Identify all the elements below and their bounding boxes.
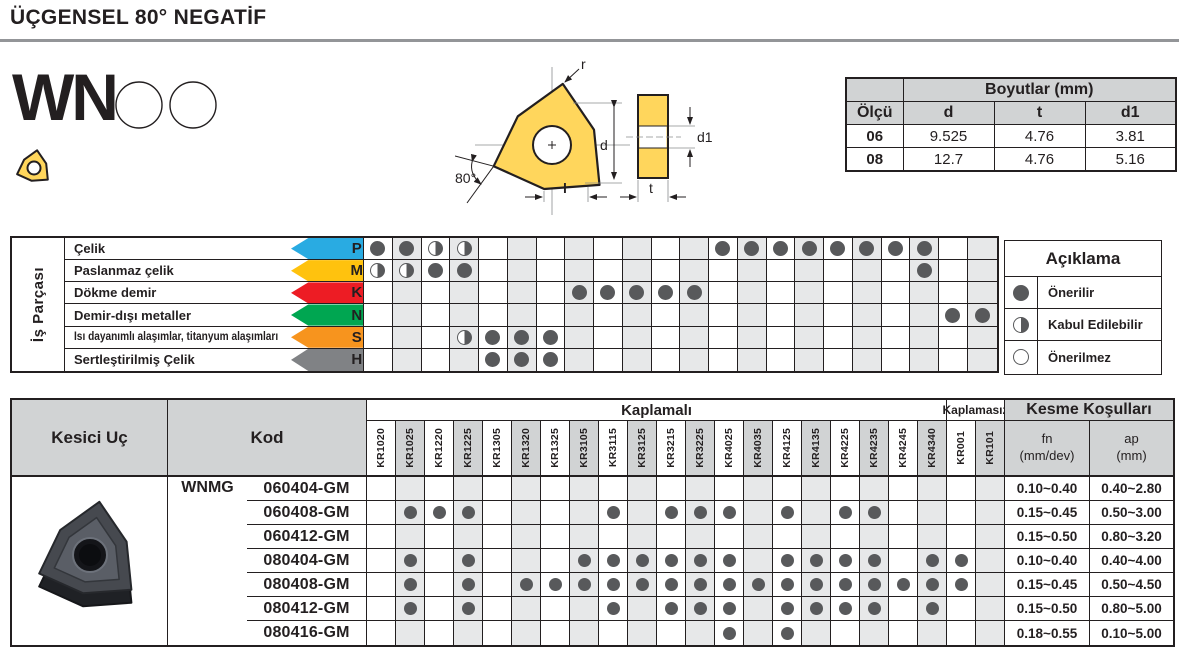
grade-cell-060412-GM-KR4245 <box>889 525 918 549</box>
grade-cell-080416-GM-KR4025 <box>715 621 744 645</box>
grade-header-KR4125: KR4125 <box>773 421 802 477</box>
grade-cell-080408-GM-KR4340 <box>918 573 947 597</box>
grade-cell-060408-GM-KR3125 <box>628 501 657 525</box>
rating-full-icon <box>629 285 644 300</box>
grade-cell-080416-GM-KR3125 <box>628 621 657 645</box>
page-title: ÜÇGENSEL 80° NEGATİF <box>10 6 266 30</box>
rating-full-icon <box>636 578 649 591</box>
cutting-conditions-header: Kesme Koşulları <box>1005 400 1173 421</box>
grade-cell-060412-GM-KR4225 <box>831 525 860 549</box>
rating-cell-K-KR1020 <box>364 282 393 304</box>
grade-cell-060412-GM-KR4340 <box>918 525 947 549</box>
grade-cell-080412-GM-KR3225 <box>686 597 715 621</box>
grade-cell-080416-GM-KR1020 <box>367 621 396 645</box>
legend-label-acceptable: Kabul Edilebilir <box>1038 309 1161 341</box>
rating-cell-N-KR101 <box>968 304 997 326</box>
grade-cell-060408-GM-KR3115 <box>599 501 628 525</box>
grade-cell-080416-GM-KR4245 <box>889 621 918 645</box>
title-divider <box>0 39 1179 42</box>
rating-full-icon <box>897 578 910 591</box>
grade-cell-080404-GM-KR1020 <box>367 549 396 573</box>
grade-cell-060412-GM-KR001 <box>947 525 976 549</box>
grade-cell-080408-GM-KR4245 <box>889 573 918 597</box>
grade-cell-080412-GM-KR001 <box>947 597 976 621</box>
grade-label: KR4025 <box>723 428 735 468</box>
label-r: r <box>581 56 586 72</box>
grade-cell-080404-GM-KR1320 <box>512 549 541 573</box>
rating-cell-N-KR4235 <box>853 304 882 326</box>
grade-cell-060404-GM-KR001 <box>947 477 976 501</box>
grade-header-KR001: KR001 <box>947 421 976 477</box>
rating-cell-K-KR1325 <box>537 282 566 304</box>
rating-cell-M-KR4125 <box>767 260 796 282</box>
iso-class-arrow-H: H <box>291 349 363 371</box>
grade-cell-060404-GM-KR4125 <box>773 477 802 501</box>
grade-cell-080416-GM-KR1225 <box>454 621 483 645</box>
rating-full-icon <box>810 554 823 567</box>
rating-cell-H-KR4125 <box>767 349 796 371</box>
rating-cell-K-KR3215 <box>652 282 681 304</box>
rating-cell-H-KR4225 <box>824 349 853 371</box>
fn-value-060404-GM: 0.10~0.40 <box>1005 477 1090 501</box>
iso-class-arrow-S: S <box>291 327 363 348</box>
product-code-080404-GM: 080404-GM <box>247 549 367 573</box>
material-name: Dökme demir <box>74 285 156 300</box>
rating-cell-N-KR4025 <box>709 304 738 326</box>
rating-cell-K-KR1305 <box>479 282 508 304</box>
rating-cell-H-KR4235 <box>853 349 882 371</box>
rating-full-icon <box>658 285 673 300</box>
rating-cell-M-KR4225 <box>824 260 853 282</box>
rating-full-icon <box>781 578 794 591</box>
rating-full-icon <box>687 285 702 300</box>
rating-cell-P-KR4225 <box>824 238 853 260</box>
rating-cell-M-KR1025 <box>393 260 422 282</box>
grade-cell-080404-GM-KR001 <box>947 549 976 573</box>
rating-cell-K-KR001 <box>939 282 968 304</box>
grade-cell-060412-GM-KR3225 <box>686 525 715 549</box>
label-angle: 80° <box>455 170 476 186</box>
uncoated-group-header: Kaplamasız <box>947 400 1005 421</box>
grade-header-KR1320: KR1320 <box>512 421 541 477</box>
grade-cell-080416-GM-KR1320 <box>512 621 541 645</box>
grade-cell-060408-GM-KR1325 <box>541 501 570 525</box>
grade-cell-080404-GM-KR4035 <box>744 549 773 573</box>
rating-cell-P-KR3125 <box>623 238 652 260</box>
grade-label: KR3115 <box>607 428 619 467</box>
grade-label: KR1020 <box>375 428 387 468</box>
rating-cell-H-KR3105 <box>565 349 594 371</box>
rating-cell-P-KR4340 <box>910 238 939 260</box>
rating-full-icon <box>428 263 443 278</box>
grade-label: KR101 <box>984 431 996 465</box>
rating-full-icon <box>607 554 620 567</box>
legend: Açıklama Önerilir Kabul Edilebilir Öneri… <box>1004 240 1162 375</box>
rating-full-icon <box>868 554 881 567</box>
rating-full-icon <box>514 330 529 345</box>
grade-cell-080412-GM-KR1020 <box>367 597 396 621</box>
grade-cell-080408-GM-KR3215 <box>657 573 686 597</box>
rating-cell-S-KR4340 <box>910 327 939 349</box>
rating-cell-P-KR1020 <box>364 238 393 260</box>
grade-header-KR4225: KR4225 <box>831 421 860 477</box>
grade-cell-060408-GM-KR1320 <box>512 501 541 525</box>
rating-full-icon <box>572 285 587 300</box>
rating-cell-N-KR3225 <box>680 304 709 326</box>
rating-cell-P-KR4235 <box>853 238 882 260</box>
rating-cell-N-KR4135 <box>795 304 824 326</box>
rating-full-icon <box>694 554 707 567</box>
grade-cell-060404-GM-KR3115 <box>599 477 628 501</box>
rating-cell-H-KR1220 <box>422 349 451 371</box>
rating-full-icon <box>607 506 620 519</box>
recommended-icon <box>1013 285 1029 301</box>
rating-cell-M-KR4135 <box>795 260 824 282</box>
rating-cell-S-KR4245 <box>882 327 911 349</box>
material-row-S: Isı dayanımlı alaşımlar, titanyum alaşım… <box>65 327 364 349</box>
grade-cell-080408-GM-KR1225 <box>454 573 483 597</box>
grade-cell-080404-GM-KR101 <box>976 549 1005 573</box>
rating-full-icon <box>830 241 845 256</box>
dimensions-table: Boyutlar (mm) Ölçü d t d1 06 9.525 4.76 … <box>845 77 1177 172</box>
grade-cell-080404-GM-KR3225 <box>686 549 715 573</box>
dims-t: 4.76 <box>994 125 1085 148</box>
ap-value-060412-GM: 0.80~3.20 <box>1090 525 1173 549</box>
rating-cell-H-KR1025 <box>393 349 422 371</box>
dims-d: 12.7 <box>903 148 994 172</box>
dims-col-d1: d1 <box>1085 102 1176 125</box>
rating-full-icon <box>715 241 730 256</box>
rating-full-icon <box>917 263 932 278</box>
grade-cell-080408-GM-KR3225 <box>686 573 715 597</box>
rating-cell-P-KR101 <box>968 238 997 260</box>
rating-full-icon <box>723 627 736 640</box>
rating-full-icon <box>399 241 414 256</box>
rating-cell-H-KR3115 <box>594 349 623 371</box>
rating-full-icon <box>520 578 533 591</box>
rating-cell-N-KR4245 <box>882 304 911 326</box>
rating-full-icon <box>859 241 874 256</box>
rating-cell-N-KR3125 <box>623 304 652 326</box>
grade-cell-080404-GM-KR3115 <box>599 549 628 573</box>
dims-t: 4.76 <box>994 148 1085 172</box>
rating-full-icon <box>578 554 591 567</box>
label-d: d <box>600 137 608 153</box>
rating-full-icon <box>607 578 620 591</box>
rating-cell-S-KR101 <box>968 327 997 349</box>
rating-cell-N-KR4340 <box>910 304 939 326</box>
grade-cell-080416-GM-KR4225 <box>831 621 860 645</box>
rating-cell-M-KR1305 <box>479 260 508 282</box>
product-code-080416-GM: 080416-GM <box>247 621 367 645</box>
rating-full-icon <box>781 554 794 567</box>
rating-cell-H-KR4035 <box>738 349 767 371</box>
rating-full-icon <box>665 602 678 615</box>
insert-photo <box>15 479 165 643</box>
grade-cell-080416-GM-KR1025 <box>396 621 425 645</box>
grade-cell-080416-GM-KR4035 <box>744 621 773 645</box>
grade-label: KR1305 <box>491 428 503 468</box>
rating-cell-H-KR1305 <box>479 349 508 371</box>
rating-full-icon <box>723 602 736 615</box>
grade-cell-080412-GM-KR1025 <box>396 597 425 621</box>
grade-cell-060412-GM-KR4135 <box>802 525 831 549</box>
grade-cell-060412-GM-KR4025 <box>715 525 744 549</box>
rating-half-icon <box>428 241 443 256</box>
grade-cell-080412-GM-KR1220 <box>425 597 454 621</box>
iso-class-arrow-M: M <box>291 260 363 281</box>
rating-full-icon <box>600 285 615 300</box>
rating-cell-M-KR3225 <box>680 260 709 282</box>
grade-cell-060408-GM-KR3225 <box>686 501 715 525</box>
legend-title: Açıklama <box>1005 241 1161 277</box>
coated-group-header: Kaplamalı <box>367 400 947 421</box>
grade-cell-080408-GM-KR1325 <box>541 573 570 597</box>
rating-full-icon <box>810 578 823 591</box>
rating-cell-M-KR4025 <box>709 260 738 282</box>
rating-cell-P-KR1320 <box>508 238 537 260</box>
product-code-060408-GM: 060408-GM <box>247 501 367 525</box>
grade-cell-080404-GM-KR4135 <box>802 549 831 573</box>
rating-cell-P-KR4025 <box>709 238 738 260</box>
grade-cell-060408-GM-KR4035 <box>744 501 773 525</box>
dims-size: 08 <box>846 148 903 172</box>
rating-full-icon <box>839 554 852 567</box>
rating-full-icon <box>404 506 417 519</box>
grade-header-KR1305: KR1305 <box>483 421 512 477</box>
rating-cell-N-KR3215 <box>652 304 681 326</box>
grade-label: KR001 <box>955 431 967 465</box>
grade-cell-080404-GM-KR1025 <box>396 549 425 573</box>
rating-cell-N-KR3105 <box>565 304 594 326</box>
grade-cell-080416-GM-KR001 <box>947 621 976 645</box>
rating-full-icon <box>462 578 475 591</box>
insert-series-code: WN <box>12 64 116 130</box>
grade-cell-060408-GM-KR101 <box>976 501 1005 525</box>
grade-cell-080412-GM-KR4035 <box>744 597 773 621</box>
legend-label-not-recommended: Önerilmez <box>1038 341 1161 373</box>
rating-cell-H-KR4245 <box>882 349 911 371</box>
product-series-label: WNMG <box>168 477 247 645</box>
rating-cell-K-KR1025 <box>393 282 422 304</box>
rating-cell-S-KR4225 <box>824 327 853 349</box>
grade-label: KR4125 <box>781 428 793 468</box>
rating-full-icon <box>773 241 788 256</box>
trigon-insert-icon <box>13 145 59 191</box>
rating-cell-H-KR3125 <box>623 349 652 371</box>
rating-cell-S-KR3225 <box>680 327 709 349</box>
rating-full-icon <box>839 602 852 615</box>
rating-cell-S-KR3215 <box>652 327 681 349</box>
dims-col-d: d <box>903 102 994 125</box>
rating-full-icon <box>888 241 903 256</box>
grade-label: KR4135 <box>810 428 822 468</box>
ap-value-060404-GM: 0.40~2.80 <box>1090 477 1173 501</box>
rating-full-icon <box>723 578 736 591</box>
fn-value-080408-GM: 0.15~0.45 <box>1005 573 1090 597</box>
rating-full-icon <box>607 602 620 615</box>
rating-cell-S-KR3105 <box>565 327 594 349</box>
rating-cell-P-KR1220 <box>422 238 451 260</box>
grade-header-KR4135: KR4135 <box>802 421 831 477</box>
grade-cell-080404-GM-KR1225 <box>454 549 483 573</box>
grade-cell-060404-GM-KR3215 <box>657 477 686 501</box>
material-row-P: ÇelikP <box>65 238 364 260</box>
rating-cell-S-KR001 <box>939 327 968 349</box>
grade-cell-060404-GM-KR1320 <box>512 477 541 501</box>
grade-header-KR3125: KR3125 <box>628 421 657 477</box>
rating-cell-K-KR3115 <box>594 282 623 304</box>
rating-full-icon <box>781 627 794 640</box>
grade-label: KR4035 <box>752 428 764 468</box>
acceptable-icon <box>1013 317 1029 333</box>
rating-full-icon <box>868 578 881 591</box>
grade-cell-080404-GM-KR4025 <box>715 549 744 573</box>
iso-class-arrow-K: K <box>291 282 363 303</box>
rating-cell-H-KR4340 <box>910 349 939 371</box>
rating-cell-M-KR101 <box>968 260 997 282</box>
legend-symbol-recommended <box>1005 277 1038 309</box>
insert-photo-cell <box>12 477 168 645</box>
rating-full-icon <box>694 578 707 591</box>
product-code-080412-GM: 080412-GM <box>247 597 367 621</box>
grade-label: KR1225 <box>462 428 474 468</box>
dims-title: Boyutlar (mm) <box>903 78 1176 102</box>
grade-cell-060412-GM-KR1320 <box>512 525 541 549</box>
grade-cell-080416-GM-KR101 <box>976 621 1005 645</box>
grade-cell-060404-GM-KR101 <box>976 477 1005 501</box>
rating-full-icon <box>462 554 475 567</box>
label-d1: d1 <box>697 129 713 145</box>
rating-cell-K-KR1225 <box>450 282 479 304</box>
grade-cell-060408-GM-KR4125 <box>773 501 802 525</box>
grade-cell-060408-GM-KR1025 <box>396 501 425 525</box>
grade-cell-080416-GM-KR3225 <box>686 621 715 645</box>
rating-full-icon <box>839 578 852 591</box>
grade-cell-060408-GM-KR1020 <box>367 501 396 525</box>
rating-cell-P-KR1305 <box>479 238 508 260</box>
rating-full-icon <box>781 602 794 615</box>
rating-cell-N-KR4035 <box>738 304 767 326</box>
rating-full-icon <box>926 554 939 567</box>
rating-full-icon <box>457 263 472 278</box>
grade-cell-080408-GM-KR4225 <box>831 573 860 597</box>
insert-technical-drawing: r d l 80° d1 t <box>455 55 827 225</box>
ap-value-080408-GM: 0.50~4.50 <box>1090 573 1173 597</box>
rating-full-icon <box>462 506 475 519</box>
grade-cell-080408-GM-KR101 <box>976 573 1005 597</box>
grade-label: KR3125 <box>636 428 648 468</box>
rating-cell-H-KR1320 <box>508 349 537 371</box>
grade-cell-080408-GM-KR001 <box>947 573 976 597</box>
workpiece-axis-label: İş Parçası <box>12 238 65 371</box>
grade-cell-060404-GM-KR4340 <box>918 477 947 501</box>
grade-cell-060412-GM-KR1220 <box>425 525 454 549</box>
grade-cell-080416-GM-KR3215 <box>657 621 686 645</box>
rating-full-icon <box>543 330 558 345</box>
grade-header-KR3215: KR3215 <box>657 421 686 477</box>
grade-cell-080412-GM-KR3125 <box>628 597 657 621</box>
grade-cell-080404-GM-KR1220 <box>425 549 454 573</box>
rating-cell-K-KR3225 <box>680 282 709 304</box>
grade-cell-080408-GM-KR1305 <box>483 573 512 597</box>
grade-cell-060412-GM-KR3125 <box>628 525 657 549</box>
rating-full-icon <box>665 578 678 591</box>
rating-full-icon <box>433 506 446 519</box>
grade-cell-060412-GM-KR1225 <box>454 525 483 549</box>
grade-cell-080416-GM-KR1305 <box>483 621 512 645</box>
grade-cell-080404-GM-KR4125 <box>773 549 802 573</box>
grade-cell-060404-GM-KR4135 <box>802 477 831 501</box>
grade-cell-080412-GM-KR4225 <box>831 597 860 621</box>
grade-cell-080408-GM-KR1320 <box>512 573 541 597</box>
grade-cell-080416-GM-KR1220 <box>425 621 454 645</box>
rating-cell-M-KR001 <box>939 260 968 282</box>
dims-row-08: 08 12.7 4.76 5.16 <box>846 148 1176 172</box>
grade-cell-080412-GM-KR4135 <box>802 597 831 621</box>
grade-cell-080404-GM-KR1325 <box>541 549 570 573</box>
rating-cell-K-KR4245 <box>882 282 911 304</box>
rating-cell-S-KR4035 <box>738 327 767 349</box>
material-row-K: Dökme demirK <box>65 282 364 304</box>
rating-cell-S-KR1320 <box>508 327 537 349</box>
rating-cell-P-KR4135 <box>795 238 824 260</box>
rating-cell-S-KR3115 <box>594 327 623 349</box>
grade-cell-060404-GM-KR4235 <box>860 477 889 501</box>
dims-d: 9.525 <box>903 125 994 148</box>
grade-cell-080412-GM-KR101 <box>976 597 1005 621</box>
grade-cell-060404-GM-KR1025 <box>396 477 425 501</box>
rating-full-icon <box>578 578 591 591</box>
rating-cell-N-KR4225 <box>824 304 853 326</box>
rating-cell-M-KR1325 <box>537 260 566 282</box>
dims-size-header: Ölçü <box>846 102 903 125</box>
material-row-M: Paslanmaz çelikM <box>65 260 364 282</box>
rating-cell-M-KR4340 <box>910 260 939 282</box>
grade-cell-060412-GM-KR4125 <box>773 525 802 549</box>
grade-cell-080412-GM-KR4025 <box>715 597 744 621</box>
rating-full-icon <box>694 602 707 615</box>
grade-header-KR1020: KR1020 <box>367 421 396 477</box>
rating-full-icon <box>636 554 649 567</box>
grade-cell-080404-GM-KR1305 <box>483 549 512 573</box>
grade-header-KR4245: KR4245 <box>889 421 918 477</box>
rating-cell-P-KR4125 <box>767 238 796 260</box>
rating-full-icon <box>744 241 759 256</box>
rating-cell-N-KR1020 <box>364 304 393 326</box>
rating-cell-S-KR1325 <box>537 327 566 349</box>
grade-cell-060412-GM-KR4035 <box>744 525 773 549</box>
grade-cell-080404-GM-KR3125 <box>628 549 657 573</box>
material-name: Demir-dışı metaller <box>74 308 191 323</box>
grade-cell-060412-GM-KR1325 <box>541 525 570 549</box>
rating-cell-M-KR1225 <box>450 260 479 282</box>
rating-cell-S-KR4135 <box>795 327 824 349</box>
grade-cell-060412-GM-KR101 <box>976 525 1005 549</box>
rating-full-icon <box>810 602 823 615</box>
rating-cell-M-KR3115 <box>594 260 623 282</box>
rating-full-icon <box>549 578 562 591</box>
grade-header-KR3115: KR3115 <box>599 421 628 477</box>
grade-cell-060404-GM-KR1220 <box>425 477 454 501</box>
rating-full-icon <box>462 602 475 615</box>
grade-cell-080408-GM-KR4025 <box>715 573 744 597</box>
material-row-H: Sertleştirilmiş ÇelikH <box>65 349 364 371</box>
rating-cell-S-KR1225 <box>450 327 479 349</box>
rating-full-icon <box>781 506 794 519</box>
grade-cell-080404-GM-KR4245 <box>889 549 918 573</box>
rating-cell-P-KR4245 <box>882 238 911 260</box>
